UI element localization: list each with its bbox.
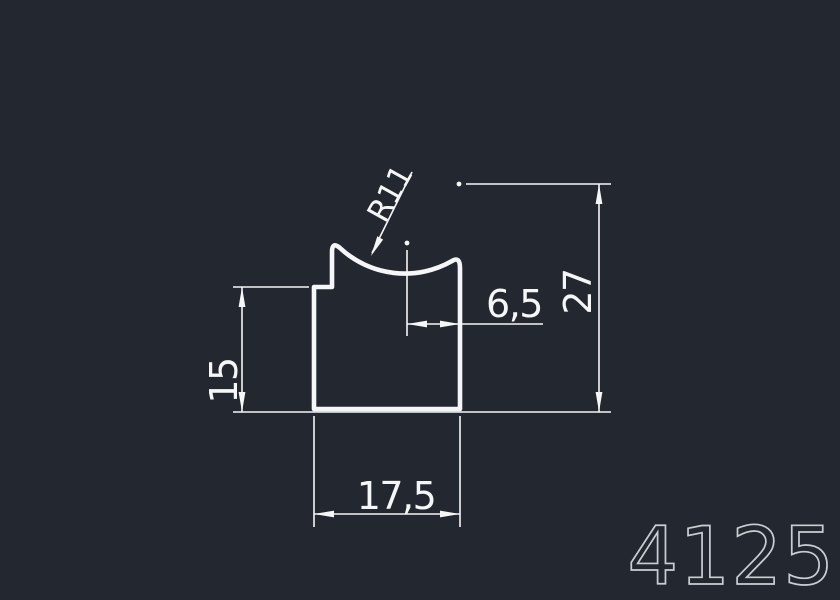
dim-17-5-arrow-left-icon [314,511,334,518]
arc-centerline-dot [405,241,410,246]
dim-6-5-arrow-left-icon [407,321,427,328]
radius-leader: R11 [360,160,420,256]
dim-17-5-arrow-right-icon [440,511,460,518]
profile-outline [314,245,460,409]
cad-drawing-canvas: 15 17,5 27 6,5 [0,0,840,600]
dim-17-5-label: 17,5 [357,474,436,518]
dim-6-5-arrow-right-icon [440,321,460,328]
dim-6-5-label: 6,5 [486,282,542,326]
dimension-overall-width: 17,5 [314,416,460,527]
dim-15-arrow-up-icon [239,287,246,307]
dim-15-label: 15 [202,358,246,403]
dimension-left-height: 15 [202,287,309,412]
dim-27-arrow-down-icon [596,392,603,412]
dim-27-arrow-up-icon [596,184,603,204]
radius-leader-arrow-icon [371,236,383,256]
dim-27-reference-dot [457,182,462,187]
dim-27-label: 27 [556,269,600,314]
part-number-label: 4125 [627,510,835,600]
drawing-viewport: 15 17,5 27 6,5 [0,0,840,600]
dimension-arc-offset: 6,5 [405,241,543,336]
radius-label: R11 [360,160,420,228]
